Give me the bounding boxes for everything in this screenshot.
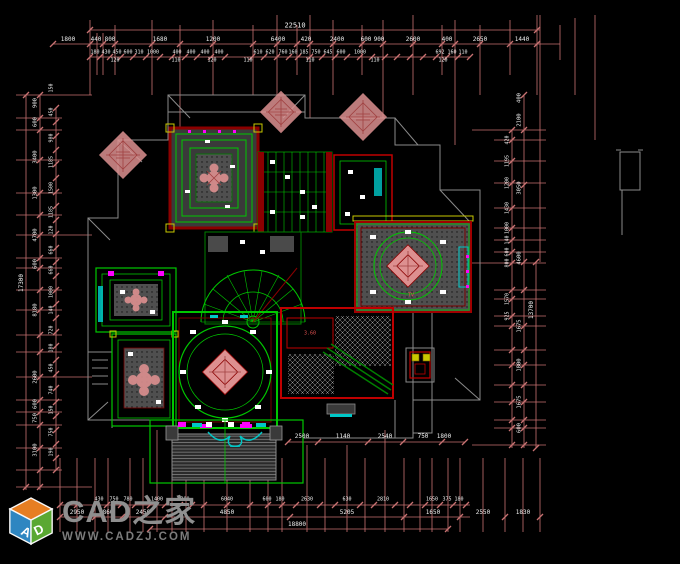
living-room: [173, 312, 277, 428]
deck: [150, 420, 303, 483]
floor-plan-canvas: [0, 0, 680, 564]
watermark-url: WWW.CADZJ.COM: [62, 531, 196, 543]
room-top-right: [334, 155, 392, 230]
watermark-title: CAD之家: [62, 496, 196, 529]
legend-box: [616, 150, 643, 235]
corridor: [258, 152, 332, 232]
room-left-mid: [96, 268, 176, 332]
cad-drawing-viewport: 2251018004408001680120064004202400600900…: [0, 0, 680, 564]
stair-hall: [201, 232, 305, 328]
room-lower-left: [110, 331, 178, 426]
fireplace: [406, 348, 434, 382]
dimension-grid: [16, 15, 595, 532]
watermark-logo: A D CAD之家 WWW.CADZJ.COM: [8, 496, 196, 546]
room-top-left: [166, 124, 262, 232]
diamond-medallion: [202, 349, 247, 394]
cadzj-cube-icon: A D: [8, 496, 54, 546]
room-right: [353, 216, 473, 312]
